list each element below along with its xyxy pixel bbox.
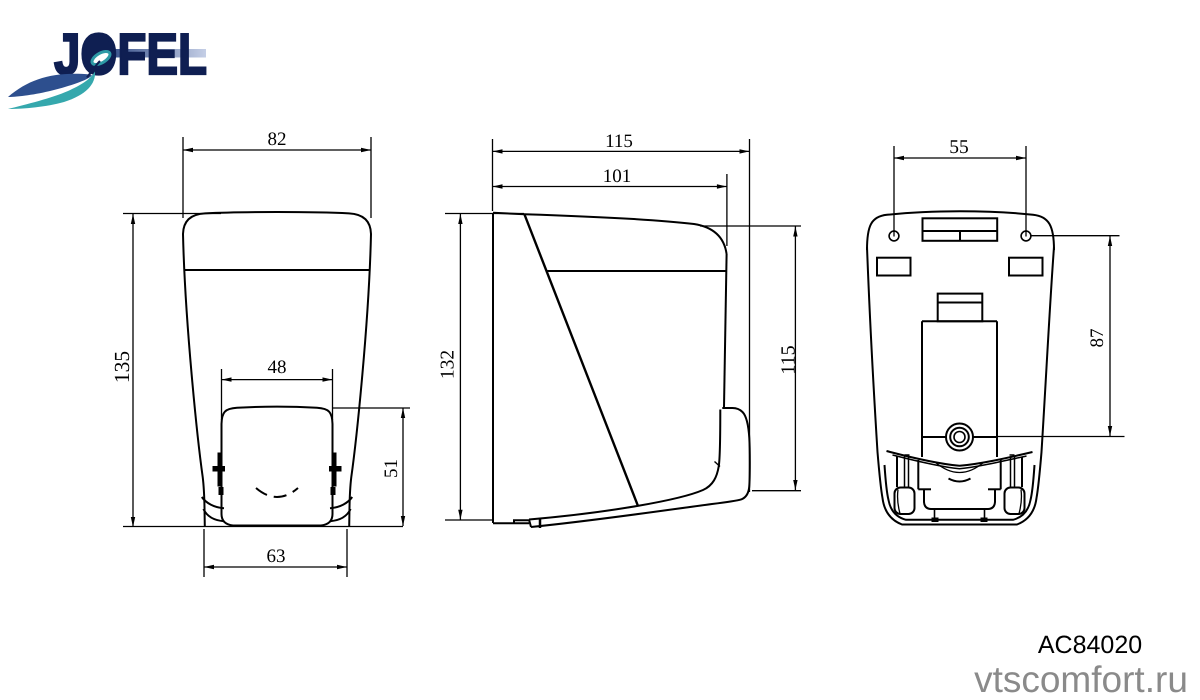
svg-text:82: 82 <box>268 129 287 150</box>
svg-text:115: 115 <box>778 345 800 374</box>
svg-text:48: 48 <box>268 357 287 378</box>
svg-text:87: 87 <box>1087 329 1108 348</box>
svg-text:101: 101 <box>603 166 632 187</box>
svg-text:115: 115 <box>605 131 633 152</box>
svg-text:51: 51 <box>381 459 402 478</box>
svg-text:55: 55 <box>949 137 969 158</box>
svg-text:132: 132 <box>438 350 459 379</box>
svg-text:AC84020: AC84020 <box>1038 631 1142 659</box>
svg-text:135: 135 <box>110 351 134 383</box>
svg-text:vtscomfort.ru: vtscomfort.ru <box>974 659 1188 700</box>
svg-text:63: 63 <box>267 546 286 567</box>
